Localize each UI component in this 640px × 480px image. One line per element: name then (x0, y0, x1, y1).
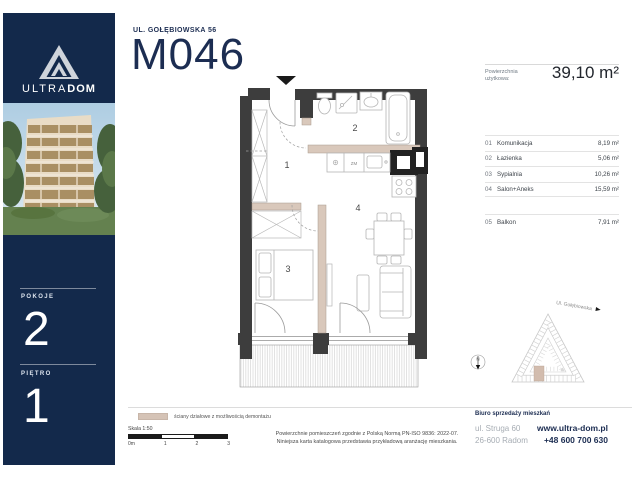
toilet-icon (317, 93, 332, 98)
tv-cabinet (327, 264, 332, 306)
table-row: 02 Łazienka 5,06 m² (485, 151, 619, 167)
table-row: 01 Komunikacja 8,19 m² (485, 135, 619, 151)
sidebar-divider (20, 364, 96, 365)
window (252, 337, 408, 341)
washing-machine-icon (336, 93, 357, 113)
norm-notes: Powierzchnie pomieszczeń zgodnie z Polsk… (270, 430, 464, 446)
floor-value: 1 (23, 382, 50, 432)
dishwasher-label: ZM (351, 161, 358, 166)
footer-divider (128, 407, 632, 408)
kitchen-sink-icon (367, 156, 382, 168)
rooms-count-label: POKOJE (21, 294, 54, 300)
brand-dom: DOM (67, 83, 96, 95)
scale-label: Skala 1:50 (128, 426, 153, 432)
room-label-1: 1 (284, 160, 289, 170)
street-label: Ul. Gołębiowska (556, 300, 601, 314)
site-map: Ul. Gołębiowska N (470, 290, 632, 402)
room-list: 01 Komunikacja 8,19 m² 02 Łazienka 5,06 … (485, 135, 619, 230)
rooms-count-value: 2 (23, 305, 50, 355)
room-label-2: 2 (352, 123, 357, 133)
bed (256, 250, 313, 300)
room-label-4: 4 (355, 203, 360, 213)
phone-link[interactable]: +48 600 700 630 (500, 435, 608, 445)
sales-office-heading: Biuro sprzedaży mieszkań (475, 411, 550, 417)
wardrobe (252, 110, 301, 238)
brand-ultra: ULTRA (22, 83, 67, 95)
sofa (380, 266, 411, 318)
highlighted-unit[interactable] (534, 366, 544, 381)
building-photo (3, 103, 115, 235)
ultradom-logo-icon (37, 43, 81, 81)
street-arrow-icon (595, 307, 601, 312)
balcony-area (240, 345, 418, 387)
compass-icon: N (471, 355, 485, 370)
shaft (390, 147, 428, 175)
floorplan-card: ULTRADOM (0, 0, 640, 480)
partition-legend-swatch (138, 413, 168, 420)
floor-plan: ZM (228, 66, 438, 396)
table-row: 05 Balkon 7,91 m² (485, 214, 619, 230)
website-link[interactable]: www.ultra-dom.pl (500, 423, 608, 433)
pillow (259, 253, 271, 273)
usable-area-value: 39,10 m² (485, 63, 619, 83)
table-row: 03 Sypialnia 10,26 m² (485, 166, 619, 182)
room-label-3: 3 (285, 264, 290, 274)
table-row: 04 Salon+Aneks 15,59 m² (485, 182, 619, 198)
svg-text:Ul. Gołębiowska: Ul. Gołębiowska (556, 300, 593, 312)
unit-dividers (517, 321, 578, 379)
sidebar-divider (20, 288, 96, 289)
floor-label: PIĘTRO (21, 371, 52, 377)
brand-name: ULTRADOM (3, 83, 115, 95)
scale-ticks: 0m 1 2 3 (128, 441, 230, 447)
sidebar: ULTRADOM (3, 13, 115, 465)
stove-icon (392, 176, 416, 197)
dining-set (366, 213, 412, 264)
partition-legend-label: ściany działowe z możliwością demontażu (174, 414, 271, 420)
scale-bar (128, 434, 228, 439)
coffee-table (357, 275, 369, 311)
toilet-icon (319, 98, 331, 114)
pillow (259, 277, 271, 297)
entrance-arrow-icon (276, 76, 296, 85)
